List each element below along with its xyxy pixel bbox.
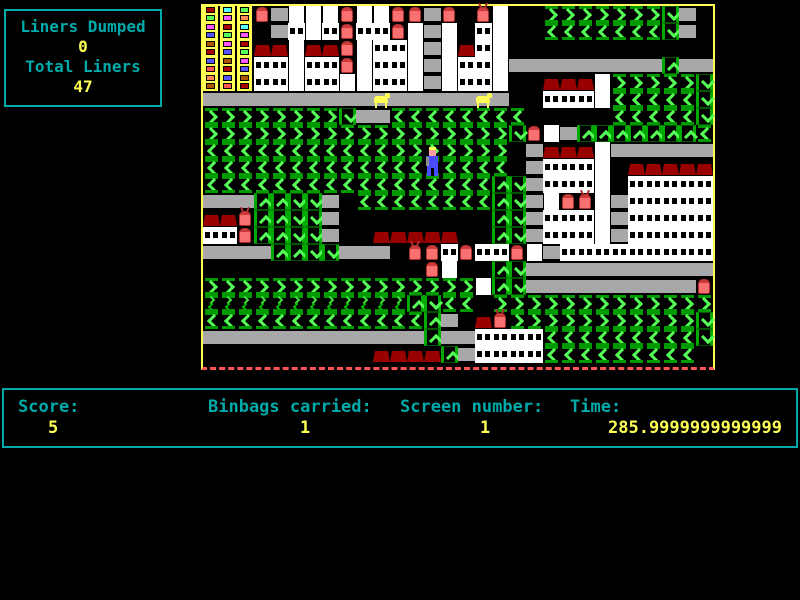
conveyor-left-tile bbox=[339, 176, 356, 193]
depot-tower-tile bbox=[237, 57, 254, 74]
building-wall-windows-tile bbox=[543, 159, 560, 176]
building-wall-tile bbox=[441, 40, 458, 57]
building-wall-windows-tile bbox=[492, 346, 509, 363]
conveyor-up-tile bbox=[271, 227, 288, 244]
road-tile bbox=[339, 91, 356, 108]
status-bar: Score: 5 Binbags carried: 1 Screen numbe… bbox=[2, 388, 798, 448]
conveyor-down-tile bbox=[339, 108, 356, 125]
conveyor-up-tile bbox=[271, 193, 288, 210]
building-wall-tile bbox=[492, 74, 509, 91]
red-bin-creature-tile bbox=[475, 6, 492, 23]
building-wall-windows-tile bbox=[305, 57, 322, 74]
conveyor-left-tile bbox=[390, 159, 407, 176]
mini-conveyor-pair-tile bbox=[288, 295, 305, 312]
depot-tower-tile bbox=[203, 74, 220, 91]
building-roof-tile bbox=[305, 40, 322, 57]
building-wall-tile bbox=[594, 74, 611, 91]
conveyor-up-tile bbox=[254, 193, 271, 210]
conveyor-left-tile bbox=[339, 312, 356, 329]
road-tile bbox=[322, 329, 339, 346]
conveyor-left-tile bbox=[288, 159, 305, 176]
road-tile bbox=[237, 329, 254, 346]
conveyor-left-tile bbox=[645, 329, 662, 346]
depot-tower-tile bbox=[220, 57, 237, 74]
building-roof-tile bbox=[424, 227, 441, 244]
road-tile bbox=[424, 23, 441, 40]
road-tile bbox=[611, 142, 628, 159]
conveyor-left-tile bbox=[271, 312, 288, 329]
building-wall-windows-tile bbox=[475, 23, 492, 40]
binbags-carried-label: Binbags carried: bbox=[208, 397, 372, 417]
building-wall-windows-tile bbox=[254, 74, 271, 91]
road-tile bbox=[254, 91, 271, 108]
building-roof-tile bbox=[577, 142, 594, 159]
road-tile bbox=[543, 57, 560, 74]
conveyor-right-tile bbox=[594, 6, 611, 23]
conveyor-right-tile bbox=[662, 295, 679, 312]
conveyor-right-tile bbox=[322, 108, 339, 125]
building-roof-tile bbox=[441, 227, 458, 244]
building-wall-tile bbox=[594, 91, 611, 108]
conveyor-left-tile bbox=[611, 91, 628, 108]
conveyor-left-tile bbox=[305, 142, 322, 159]
conveyor-right-tile bbox=[390, 142, 407, 159]
conveyor-left-tile bbox=[441, 193, 458, 210]
conveyor-left-tile bbox=[237, 159, 254, 176]
red-bin-creature-tile bbox=[577, 193, 594, 210]
building-wall-tile bbox=[305, 23, 322, 40]
depot-tower-tile bbox=[237, 40, 254, 57]
building-wall-windows-tile bbox=[220, 227, 237, 244]
conveyor-up-tile bbox=[645, 125, 662, 142]
conveyor-left-tile bbox=[594, 329, 611, 346]
conveyor-right-tile bbox=[220, 125, 237, 142]
building-wall-windows-tile bbox=[475, 244, 492, 261]
conveyor-left-tile bbox=[407, 176, 424, 193]
road-tile bbox=[254, 244, 271, 261]
red-bin bbox=[426, 245, 438, 260]
building-wall-tile bbox=[543, 125, 560, 142]
red-bin bbox=[341, 24, 353, 39]
road-tile bbox=[679, 57, 696, 74]
conveyor-left-tile bbox=[645, 23, 662, 40]
conveyor-left-tile bbox=[679, 346, 696, 363]
building-wall-windows-tile bbox=[458, 74, 475, 91]
road-tile bbox=[373, 108, 390, 125]
conveyor-right-tile bbox=[628, 295, 645, 312]
road-tile bbox=[611, 57, 628, 74]
building-wall-windows-tile bbox=[305, 74, 322, 91]
building-roof-tile bbox=[543, 142, 560, 159]
road-tile bbox=[611, 210, 628, 227]
red-bin-creature-tile bbox=[492, 312, 509, 329]
red-bin bbox=[409, 7, 421, 22]
building-wall-windows-tile bbox=[356, 23, 373, 40]
conveyor-left-tile bbox=[220, 312, 237, 329]
conveyor-right-tile bbox=[407, 142, 424, 159]
building-wall-windows-tile bbox=[543, 210, 560, 227]
conveyor-right-tile bbox=[662, 312, 679, 329]
conveyor-left-tile bbox=[441, 176, 458, 193]
building-wall-windows-tile bbox=[679, 176, 696, 193]
conveyor-up-tile bbox=[424, 312, 441, 329]
game-area[interactable] bbox=[201, 4, 715, 370]
building-wall-windows-tile bbox=[543, 91, 560, 108]
conveyor-left-tile bbox=[475, 176, 492, 193]
red-bin bbox=[511, 245, 523, 260]
building-wall-tile bbox=[339, 74, 356, 91]
conveyor-left-tile bbox=[458, 193, 475, 210]
mini-conveyor-pair-tile bbox=[305, 295, 322, 312]
conveyor-left-tile bbox=[577, 329, 594, 346]
conveyor-left-tile bbox=[458, 295, 475, 312]
red-bin-tile bbox=[526, 125, 543, 142]
building-roof-tile bbox=[560, 142, 577, 159]
building-wall-tile bbox=[356, 74, 373, 91]
red-bin bbox=[256, 7, 268, 22]
red-bin-tile bbox=[424, 244, 441, 261]
road-tile bbox=[662, 142, 679, 159]
road-tile bbox=[679, 142, 696, 159]
conveyor-right-tile bbox=[254, 278, 271, 295]
red-bin-tile bbox=[696, 278, 713, 295]
yellow-dog bbox=[374, 96, 388, 103]
building-wall-windows-tile bbox=[696, 176, 713, 193]
liners-panel: Liners Dumped 0 Total Liners 47 bbox=[4, 9, 162, 107]
road-tile bbox=[407, 91, 424, 108]
road-tile bbox=[696, 57, 713, 74]
road-tile bbox=[305, 91, 322, 108]
building-wall-windows-tile bbox=[373, 40, 390, 57]
conveyor-left-tile bbox=[203, 142, 220, 159]
red-bin-creature-tile bbox=[407, 244, 424, 261]
mini-conveyor-pair-tile bbox=[339, 295, 356, 312]
conveyor-right-tile bbox=[424, 278, 441, 295]
road-tile bbox=[594, 57, 611, 74]
building-wall-tile bbox=[356, 57, 373, 74]
conveyor-right-tile bbox=[237, 278, 254, 295]
road-tile bbox=[662, 278, 679, 295]
conveyor-left-tile bbox=[322, 142, 339, 159]
conveyor-left-tile bbox=[611, 346, 628, 363]
building-wall-windows-tile bbox=[594, 244, 611, 261]
conveyor-down-tile bbox=[509, 278, 526, 295]
building-wall-windows-tile bbox=[679, 210, 696, 227]
road-tile bbox=[543, 261, 560, 278]
road-tile bbox=[611, 193, 628, 210]
conveyor-right-tile bbox=[203, 125, 220, 142]
conveyor-left-tile bbox=[679, 108, 696, 125]
red-bin-tile bbox=[390, 23, 407, 40]
conveyor-right-tile bbox=[560, 295, 577, 312]
mini-conveyor-pair-tile bbox=[220, 295, 237, 312]
conveyor-down-tile bbox=[288, 227, 305, 244]
red-bin-creature bbox=[579, 194, 591, 209]
depot-tower-tile bbox=[220, 6, 237, 23]
road-tile bbox=[611, 227, 628, 244]
road-tile bbox=[594, 278, 611, 295]
conveyor-left-tile bbox=[237, 312, 254, 329]
road-tile bbox=[645, 261, 662, 278]
mini-conveyor-pair-tile bbox=[254, 295, 271, 312]
conveyor-right-tile bbox=[203, 278, 220, 295]
conveyor-left-tile bbox=[458, 176, 475, 193]
road-tile bbox=[526, 278, 543, 295]
building-wall-windows-tile bbox=[645, 210, 662, 227]
building-wall-windows-tile bbox=[577, 210, 594, 227]
building-wall-windows-tile bbox=[475, 329, 492, 346]
road-tile bbox=[254, 329, 271, 346]
road-tile bbox=[441, 91, 458, 108]
conveyor-left-tile bbox=[373, 159, 390, 176]
road-tile bbox=[594, 261, 611, 278]
conveyor-right-tile bbox=[492, 125, 509, 142]
conveyor-left-tile bbox=[356, 312, 373, 329]
conveyor-left-tile bbox=[662, 108, 679, 125]
conveyor-up-tile bbox=[441, 346, 458, 363]
conveyor-right-tile bbox=[492, 142, 509, 159]
conveyor-left-tile bbox=[679, 329, 696, 346]
building-wall-tile bbox=[594, 193, 611, 210]
road-tile bbox=[373, 244, 390, 261]
road-tile bbox=[424, 6, 441, 23]
building-wall-tile bbox=[492, 6, 509, 23]
building-roof-tile bbox=[645, 159, 662, 176]
red-bin-creature bbox=[409, 245, 421, 260]
building-wall-windows-tile bbox=[543, 176, 560, 193]
red-bin bbox=[239, 228, 251, 243]
red-bin-tile bbox=[254, 6, 271, 23]
building-wall-windows-tile bbox=[662, 227, 679, 244]
building-wall-windows-tile bbox=[662, 193, 679, 210]
building-roof-tile bbox=[696, 159, 713, 176]
conveyor-left-tile bbox=[254, 142, 271, 159]
road-tile bbox=[526, 227, 543, 244]
conveyor-up-tile bbox=[679, 125, 696, 142]
building-wall-windows-tile bbox=[560, 244, 577, 261]
road-tile bbox=[322, 193, 339, 210]
building-wall-windows-tile bbox=[560, 210, 577, 227]
building-wall-windows-tile bbox=[475, 74, 492, 91]
conveyor-left-tile bbox=[441, 108, 458, 125]
conveyor-right-tile bbox=[441, 142, 458, 159]
conveyor-right-tile bbox=[560, 6, 577, 23]
conveyor-left-tile bbox=[254, 312, 271, 329]
building-wall-tile bbox=[594, 142, 611, 159]
road-tile bbox=[339, 244, 356, 261]
conveyor-right-tile bbox=[628, 312, 645, 329]
conveyor-left-tile bbox=[645, 108, 662, 125]
conveyor-left-tile bbox=[475, 193, 492, 210]
conveyor-left-tile bbox=[203, 312, 220, 329]
conveyor-left-tile bbox=[220, 159, 237, 176]
red-bin bbox=[562, 194, 574, 209]
road-tile bbox=[424, 91, 441, 108]
conveyor-left-tile bbox=[594, 23, 611, 40]
conveyor-right-tile bbox=[560, 312, 577, 329]
conveyor-left-tile bbox=[679, 91, 696, 108]
conveyor-right-tile bbox=[577, 312, 594, 329]
conveyor-left-tile bbox=[424, 193, 441, 210]
building-wall-windows-tile bbox=[509, 329, 526, 346]
conveyor-left-tile bbox=[305, 312, 322, 329]
road-tile bbox=[560, 261, 577, 278]
building-roof-tile bbox=[390, 346, 407, 363]
road-tile bbox=[662, 261, 679, 278]
conveyor-down-tile bbox=[696, 91, 713, 108]
conveyor-left-tile bbox=[356, 176, 373, 193]
conveyor-left-tile bbox=[322, 159, 339, 176]
road-tile bbox=[356, 91, 373, 108]
red-bin bbox=[392, 24, 404, 39]
conveyor-left-tile bbox=[696, 125, 713, 142]
road-tile bbox=[560, 57, 577, 74]
conveyor-right-tile bbox=[611, 312, 628, 329]
building-wall-tile bbox=[543, 193, 560, 210]
conveyor-right-tile bbox=[305, 278, 322, 295]
building-wall-windows-tile bbox=[628, 193, 645, 210]
road-tile bbox=[322, 91, 339, 108]
conveyor-left-tile bbox=[288, 176, 305, 193]
road-tile bbox=[407, 329, 424, 346]
building-wall-tile bbox=[407, 57, 424, 74]
conveyor-down-tile bbox=[305, 193, 322, 210]
building-wall-windows-tile bbox=[509, 346, 526, 363]
building-wall-windows-tile bbox=[475, 40, 492, 57]
road-tile bbox=[628, 57, 645, 74]
conveyor-right-tile bbox=[237, 108, 254, 125]
conveyor-up-tile bbox=[492, 278, 509, 295]
red-bin bbox=[341, 41, 353, 56]
building-wall-tile bbox=[288, 40, 305, 57]
road-tile bbox=[424, 74, 441, 91]
building-wall-windows-tile bbox=[560, 91, 577, 108]
road-tile bbox=[271, 6, 288, 23]
red-bin-tile bbox=[560, 193, 577, 210]
conveyor-left-tile bbox=[441, 295, 458, 312]
conveyor-left-tile bbox=[271, 176, 288, 193]
road-tile bbox=[203, 244, 220, 261]
building-roof-tile bbox=[560, 74, 577, 91]
building-wall-tile bbox=[441, 74, 458, 91]
road-tile bbox=[526, 193, 543, 210]
conveyor-down-tile bbox=[288, 193, 305, 210]
road-tile bbox=[390, 91, 407, 108]
conveyor-right-tile bbox=[628, 6, 645, 23]
building-wall-windows-tile bbox=[373, 74, 390, 91]
conveyor-right-tile bbox=[356, 278, 373, 295]
conveyor-right-tile bbox=[220, 278, 237, 295]
conveyor-left-tile bbox=[509, 108, 526, 125]
conveyor-up-tile bbox=[254, 227, 271, 244]
conveyor-left-tile bbox=[237, 176, 254, 193]
depot-tower-tile bbox=[237, 74, 254, 91]
red-bin-tile bbox=[237, 227, 254, 244]
road-tile bbox=[288, 91, 305, 108]
conveyor-left-tile bbox=[543, 23, 560, 40]
road-tile bbox=[203, 329, 220, 346]
road-tile bbox=[271, 23, 288, 40]
conveyor-left-tile bbox=[645, 346, 662, 363]
building-wall-windows-tile bbox=[390, 74, 407, 91]
building-wall-tile bbox=[407, 23, 424, 40]
conveyor-right-tile bbox=[577, 295, 594, 312]
conveyor-left-tile bbox=[339, 159, 356, 176]
conveyor-right-tile bbox=[526, 312, 543, 329]
road-tile bbox=[339, 329, 356, 346]
conveyor-right-tile bbox=[679, 295, 696, 312]
mini-conveyor-pair-tile bbox=[373, 295, 390, 312]
road-tile bbox=[509, 57, 526, 74]
building-wall-windows-tile bbox=[526, 346, 543, 363]
road-tile bbox=[577, 57, 594, 74]
road-tile bbox=[577, 278, 594, 295]
building-wall-windows-tile bbox=[271, 74, 288, 91]
red-bin bbox=[426, 262, 438, 277]
building-wall-windows-tile bbox=[628, 244, 645, 261]
conveyor-up-tile bbox=[407, 295, 424, 312]
conveyor-left-tile bbox=[407, 193, 424, 210]
building-wall-windows-tile bbox=[288, 23, 305, 40]
depot-tower-tile bbox=[220, 40, 237, 57]
building-wall-tile bbox=[526, 244, 543, 261]
conveyor-left-tile bbox=[662, 346, 679, 363]
conveyor-right-tile bbox=[305, 125, 322, 142]
conveyor-left-tile bbox=[475, 159, 492, 176]
building-roof-tile bbox=[220, 210, 237, 227]
road-tile bbox=[526, 176, 543, 193]
conveyor-right-tile bbox=[254, 125, 271, 142]
conveyor-left-tile bbox=[390, 193, 407, 210]
conveyor-left-tile bbox=[203, 159, 220, 176]
building-roof-tile bbox=[543, 74, 560, 91]
conveyor-left-tile bbox=[424, 176, 441, 193]
road-tile bbox=[526, 57, 543, 74]
conveyor-up-tile bbox=[254, 210, 271, 227]
conveyor-left-tile bbox=[560, 23, 577, 40]
road-tile bbox=[679, 278, 696, 295]
road-tile bbox=[390, 329, 407, 346]
conveyor-left-tile bbox=[662, 91, 679, 108]
conveyor-down-tile bbox=[424, 295, 441, 312]
building-roof-tile bbox=[373, 346, 390, 363]
conveyor-left-tile bbox=[662, 329, 679, 346]
building-wall-windows-tile bbox=[662, 176, 679, 193]
building-wall-windows-tile bbox=[475, 346, 492, 363]
conveyor-right-tile bbox=[407, 125, 424, 142]
road-tile bbox=[526, 159, 543, 176]
conveyor-right-tile bbox=[458, 278, 475, 295]
conveyor-down-tile bbox=[322, 244, 339, 261]
conveyor-left-tile bbox=[458, 159, 475, 176]
conveyor-right-tile bbox=[628, 74, 645, 91]
building-roof-tile bbox=[407, 346, 424, 363]
conveyor-up-tile bbox=[424, 329, 441, 346]
conveyor-down-tile bbox=[509, 193, 526, 210]
conveyor-right-tile bbox=[475, 125, 492, 142]
road-tile bbox=[237, 244, 254, 261]
building-wall-windows-tile bbox=[492, 244, 509, 261]
conveyor-left-tile bbox=[424, 108, 441, 125]
red-bin-tile bbox=[407, 6, 424, 23]
building-wall-windows-tile bbox=[628, 227, 645, 244]
building-wall-windows-tile bbox=[628, 176, 645, 193]
conveyor-left-tile bbox=[203, 176, 220, 193]
depot-tower-tile bbox=[203, 57, 220, 74]
building-roof-tile bbox=[322, 40, 339, 57]
conveyor-right-tile bbox=[407, 278, 424, 295]
building-wall-windows-tile bbox=[645, 227, 662, 244]
